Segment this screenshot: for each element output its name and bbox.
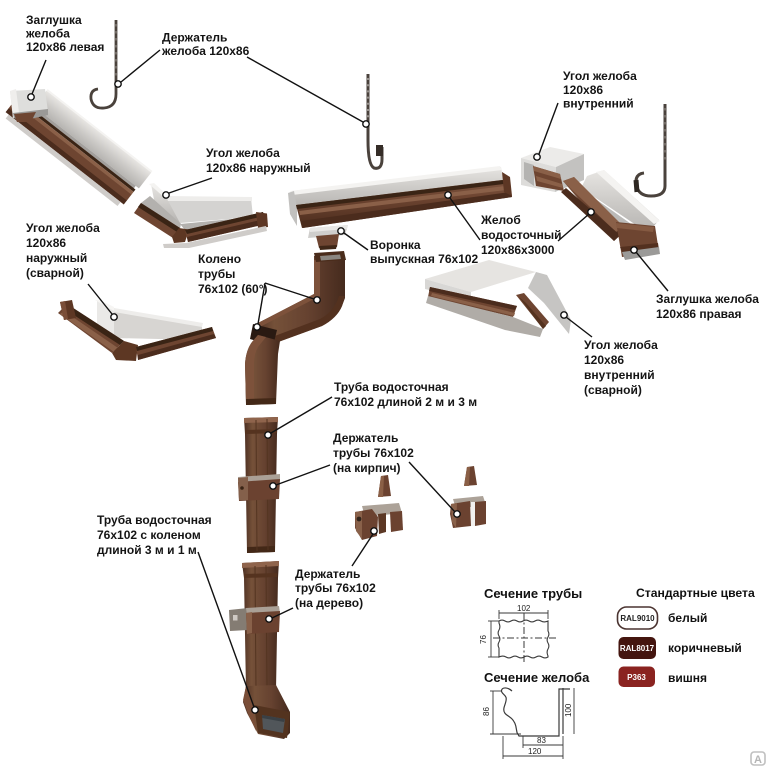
svg-text:RAL9010: RAL9010 — [620, 614, 655, 623]
svg-text:Труба водосточная: Труба водосточная — [334, 380, 449, 394]
svg-text:120: 120 — [528, 747, 542, 756]
svg-text:120х86: 120х86 — [584, 353, 624, 367]
svg-text:наружный: наружный — [26, 251, 87, 265]
svg-text:Угол желоба: Угол желоба — [584, 338, 658, 352]
svg-text:трубы 76х102: трубы 76х102 — [333, 446, 414, 460]
svg-text:Колено: Колено — [198, 252, 241, 266]
svg-text:(на кирпич): (на кирпич) — [333, 461, 401, 475]
svg-text:120х86: 120х86 — [563, 83, 603, 97]
svg-text:длиной 3 м и 1 м: длиной 3 м и 1 м — [97, 543, 197, 557]
svg-text:Держатель: Держатель — [295, 567, 360, 581]
svg-text:76: 76 — [479, 635, 488, 644]
svg-text:желоба 120х86: желоба 120х86 — [161, 44, 250, 58]
svg-text:102: 102 — [517, 604, 531, 613]
svg-text:желоба: желоба — [25, 27, 70, 41]
svg-text:120х86 правая: 120х86 правая — [656, 307, 742, 321]
svg-text:120х86х3000: 120х86х3000 — [481, 243, 555, 257]
svg-text:(сварной): (сварной) — [584, 383, 642, 397]
svg-text:Сечение желоба: Сечение желоба — [484, 670, 590, 685]
svg-text:трубы 76х102: трубы 76х102 — [295, 581, 376, 595]
svg-text:Воронка: Воронка — [370, 238, 421, 252]
svg-text:83: 83 — [537, 736, 546, 745]
svg-text:коричневый: коричневый — [668, 641, 742, 655]
svg-text:Стандартные цвета: Стандартные цвета — [636, 586, 755, 600]
svg-text:вишня: вишня — [668, 671, 707, 685]
svg-text:трубы: трубы — [198, 267, 235, 281]
svg-text:белый: белый — [668, 611, 707, 625]
svg-text:Заглушка желоба: Заглушка желоба — [656, 292, 759, 306]
svg-text:Угол желоба: Угол желоба — [26, 221, 100, 235]
svg-text:76х102 (60°): 76х102 (60°) — [198, 282, 268, 296]
svg-text:Труба водосточная: Труба водосточная — [97, 513, 212, 527]
svg-text:(на дерево): (на дерево) — [295, 596, 363, 610]
svg-text:76х102 с коленом: 76х102 с коленом — [97, 528, 201, 542]
svg-text:внутренний: внутренний — [563, 97, 634, 111]
svg-text:водосточный: водосточный — [481, 228, 561, 242]
svg-text:120х86 левая: 120х86 левая — [26, 40, 104, 54]
svg-text:76х102 длиной 2 м и 3 м: 76х102 длиной 2 м и 3 м — [334, 395, 477, 409]
svg-text:Угол желоба: Угол желоба — [206, 146, 280, 160]
svg-text:Желоб: Желоб — [480, 213, 521, 227]
svg-text:Сечение трубы: Сечение трубы — [484, 586, 582, 601]
svg-text:Держатель: Держатель — [333, 431, 398, 445]
svg-text:внутренний: внутренний — [584, 368, 655, 382]
svg-text:120х86: 120х86 — [26, 236, 66, 250]
svg-text:100: 100 — [564, 703, 573, 717]
svg-text:Держатель: Держатель — [162, 31, 227, 45]
svg-text:Угол желоба: Угол желоба — [563, 69, 637, 83]
svg-text:86: 86 — [482, 707, 491, 716]
svg-text:120х86 наружный: 120х86 наружный — [206, 161, 311, 175]
svg-text:Заглушка: Заглушка — [26, 13, 82, 27]
svg-text:RAL8017: RAL8017 — [620, 644, 655, 653]
svg-text:A: A — [754, 754, 762, 766]
svg-text:P363: P363 — [627, 673, 646, 682]
svg-text:(сварной): (сварной) — [26, 266, 84, 280]
svg-text:выпускная 76х102: выпускная 76х102 — [370, 252, 479, 266]
